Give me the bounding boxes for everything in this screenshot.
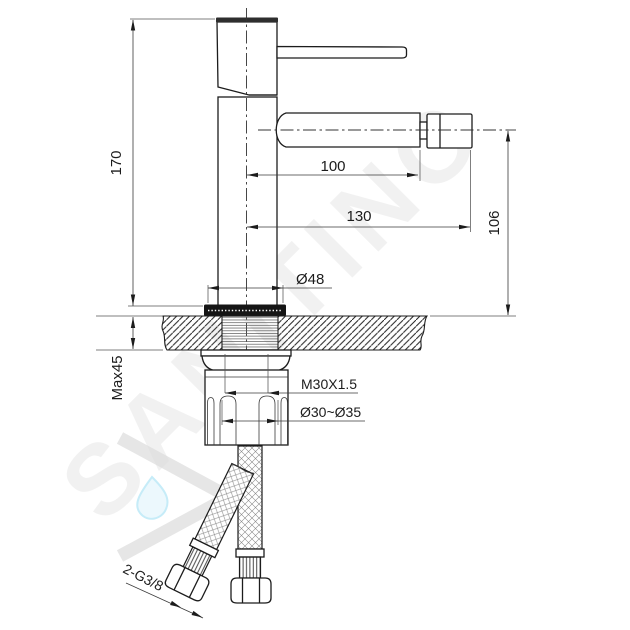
head-top-cap [216, 18, 278, 23]
threaded-shank [222, 316, 278, 350]
dim-hose-connection-label: 2-G3/8 [121, 560, 167, 594]
dim-outlet-height-label: 106 [486, 210, 503, 235]
faucet-head [217, 22, 277, 95]
dim-overall-reach-label: 130 [346, 208, 371, 225]
dim-spout-reach-label: 100 [320, 158, 345, 175]
mounting-nut [205, 370, 288, 445]
faucet-body [218, 97, 277, 306]
dim-base-diameter-label: Ø48 [296, 271, 324, 288]
hose-ferrule [236, 549, 264, 557]
aerator-neck [420, 122, 427, 139]
counter-slab-left [162, 316, 222, 350]
flange [202, 356, 290, 371]
technical-drawing: SANITINO [0, 0, 630, 630]
counter-slab-right [278, 316, 427, 350]
dim-mounting-thread-label: M30X1.5 [301, 376, 357, 392]
dim-hole-diameter-label: Ø30~Ø35 [300, 404, 361, 420]
dimension-height: 170 [108, 19, 215, 306]
aerator [427, 114, 472, 148]
washer [201, 350, 291, 356]
dim-deck-thickness-label: Max45 [109, 355, 126, 400]
dim-height-label: 170 [108, 150, 125, 175]
lever-handle [277, 47, 407, 59]
hose-hex-nut [231, 578, 271, 603]
hose-compression-section [240, 557, 261, 578]
drawing-sheet: SANITINO [0, 0, 630, 630]
